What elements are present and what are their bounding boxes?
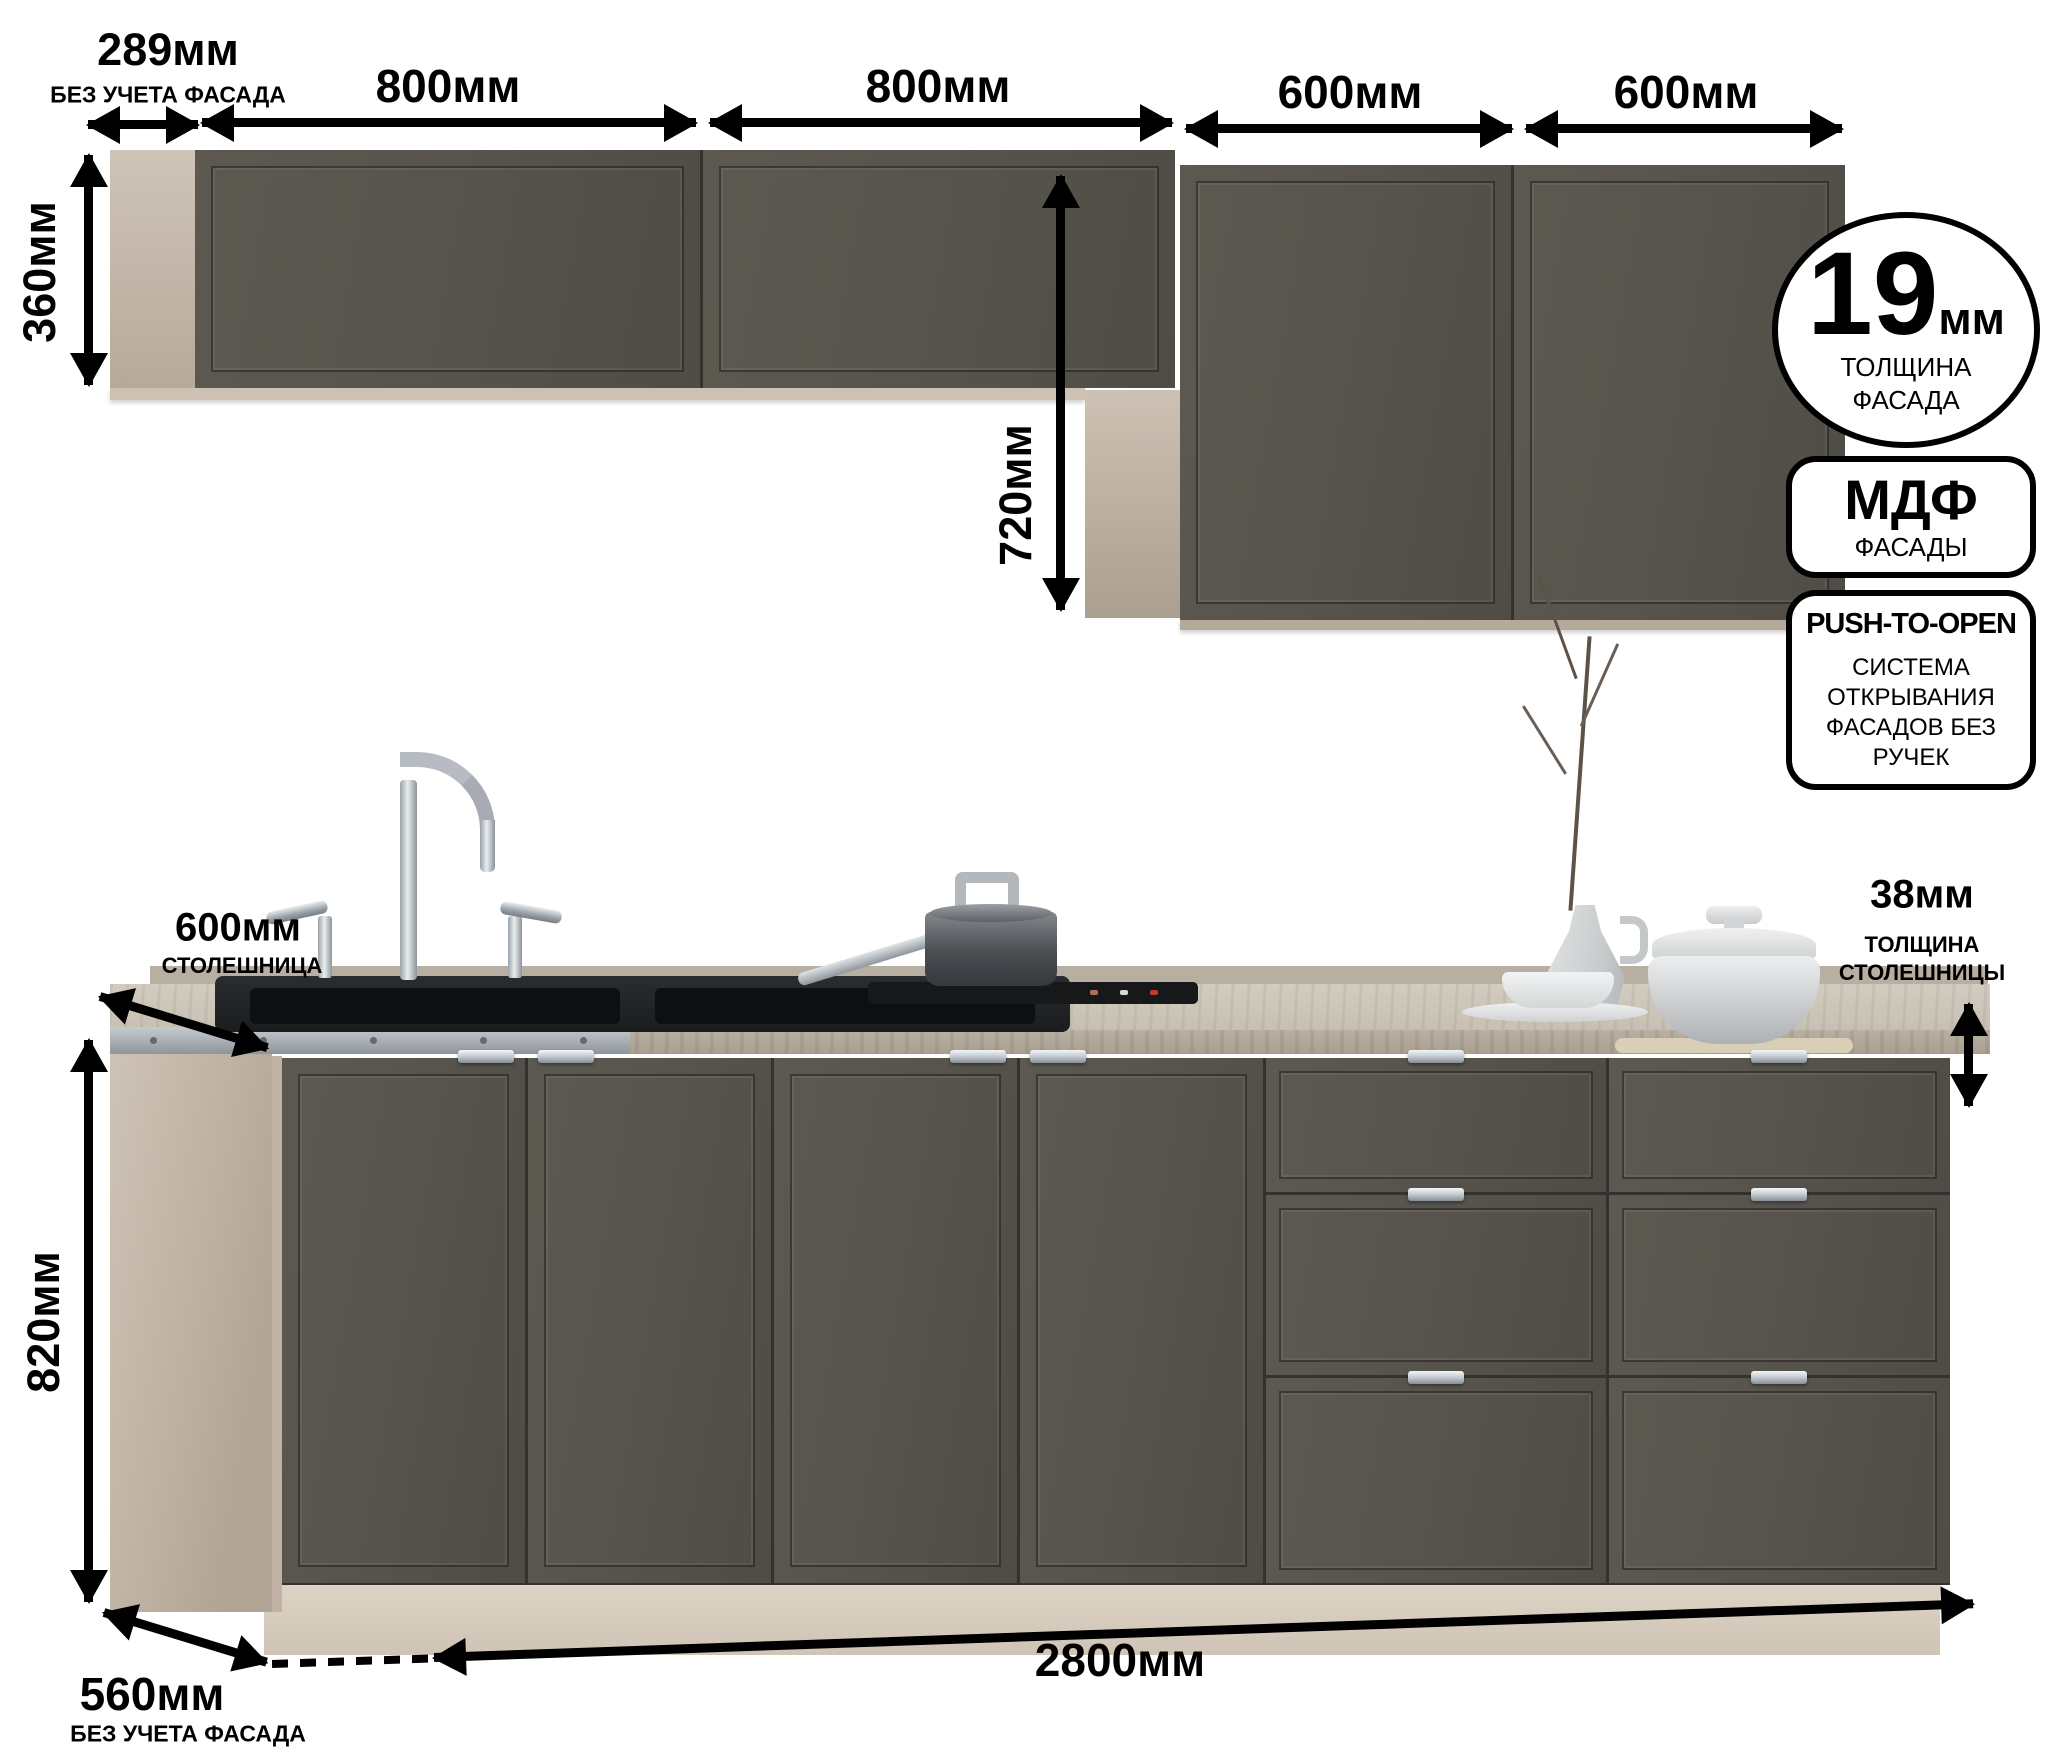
dim-wall-tall-height-arrow <box>1056 176 1065 610</box>
dim-wall-600-2-arrow <box>1526 124 1842 133</box>
screw <box>580 1037 587 1044</box>
dim-wall-800-1-value: 800мм <box>376 59 521 113</box>
faucet-spout-tip <box>480 820 495 872</box>
base-carcass-edge <box>272 1056 282 1612</box>
dim-wall-800-1-arrow <box>202 118 696 127</box>
drawer-col1-row2 <box>1266 1195 1606 1375</box>
dim-base-depth-note: БЕЗ УЧЕТА ФАСАДА <box>70 1721 306 1748</box>
drawer-handle <box>1751 1050 1807 1063</box>
badge-push-to-open: PUSH-TO-OPEN СИСТЕМА ОТКРЫВАНИЯ ФАСАДОВ … <box>1786 590 2036 790</box>
drawer-handle <box>1751 1371 1807 1384</box>
dim-base-depth-value: 560мм <box>80 1667 225 1721</box>
kitchen-dimension-diagram: 289мм БЕЗ УЧЕТА ФАСАДА 800мм 800мм 600мм… <box>0 0 2048 1757</box>
base-door-2 <box>528 1058 771 1583</box>
base-door-3 <box>774 1058 1017 1583</box>
drawer-col2-row3 <box>1609 1378 1950 1583</box>
badge-19-number: 19 <box>1807 228 1938 360</box>
dim-counter-depth-value: 600мм <box>175 906 301 951</box>
wall-door-600-1 <box>1180 165 1511 620</box>
drawer-panel-frame <box>1279 1071 1593 1179</box>
dim-wall-short-height-value: 360мм <box>14 201 66 343</box>
dim-wall-depth-value: 289мм <box>97 24 239 76</box>
door-panel-frame <box>1036 1074 1247 1567</box>
branch-stem <box>1568 636 1591 911</box>
serving-bowl <box>1502 972 1614 1008</box>
dim-counter-thickness-note1: ТОЛЩИНА <box>1865 932 1980 958</box>
drawer-panel-frame <box>1622 1208 1937 1362</box>
drawer-handle <box>1408 1188 1464 1201</box>
drawer-panel-frame <box>1622 1391 1937 1570</box>
dim-counter-thickness-note2: СТОЛЕШНИЦЫ <box>1839 960 2005 986</box>
screw <box>150 1037 157 1044</box>
badge-push-caption: СИСТЕМА ОТКРЫВАНИЯ ФАСАДОВ БЕЗ РУЧЕК <box>1823 653 1999 773</box>
badge-facade-thickness: 19мм ТОЛЩИНА ФАСАДА <box>1772 212 2040 448</box>
drawer-handle <box>1751 1188 1807 1201</box>
door-panel-frame <box>1196 181 1495 604</box>
door-handle <box>950 1050 1006 1063</box>
door-panel-frame <box>790 1074 1001 1567</box>
dim-wall-800-2-value: 800мм <box>866 59 1011 113</box>
dim-total-width-value: 2800мм <box>1035 1633 1205 1687</box>
door-panel-frame <box>1530 181 1829 604</box>
dim-wall-tall-height-value: 720мм <box>990 424 1042 566</box>
dim-wall-600-1-arrow <box>1186 124 1512 133</box>
badge-19-unit: мм <box>1938 293 2005 344</box>
dim-counter-depth-note: СТОЛЕШНИЦА <box>162 953 323 979</box>
door-handle <box>1030 1050 1086 1063</box>
dim-base-height-arrow <box>84 1040 93 1602</box>
door-handle <box>538 1050 594 1063</box>
cooktop-indicator <box>1150 990 1158 995</box>
drawer-panel-frame <box>1622 1071 1937 1179</box>
cooktop-indicator <box>1090 990 1098 995</box>
drawer-panel-frame <box>1279 1208 1593 1362</box>
badge-19-caption-2: ФАСАДА <box>1852 385 1959 416</box>
drawer-col1-row1 <box>1266 1058 1606 1192</box>
drawer-col2-row2 <box>1609 1195 1950 1375</box>
dim-wall-short-height-arrow <box>84 155 93 385</box>
door-panel-frame <box>211 166 684 372</box>
branch-twig <box>1522 705 1567 774</box>
dim-total-width-dashed-lead <box>272 1654 430 1668</box>
screw <box>480 1037 487 1044</box>
door-panel-frame <box>719 166 1159 372</box>
wall-bottom-rail <box>110 388 1085 400</box>
badge-19-caption-1: ТОЛЩИНА <box>1841 352 1972 383</box>
wall-door-800-1 <box>195 150 700 388</box>
screw <box>370 1037 377 1044</box>
dim-wall-600-1-value: 600мм <box>1278 65 1423 119</box>
dim-wall-800-2-arrow <box>710 118 1172 127</box>
vase-handle <box>1620 916 1648 964</box>
wall-door-800-2 <box>703 150 1175 388</box>
saucepan-lid <box>930 904 1052 922</box>
dim-base-depth-arrow <box>103 1608 268 1666</box>
badge-mdf-caption: ФАСАДЫ <box>1854 532 1967 563</box>
dim-base-height-value: 820мм <box>18 1251 70 1393</box>
sink-bowl-left <box>250 988 620 1024</box>
base-side-panel <box>110 1054 272 1612</box>
drawer-handle <box>1408 1371 1464 1384</box>
drawer-col1-row3 <box>1266 1378 1606 1583</box>
badge-push-title: PUSH-TO-OPEN <box>1806 608 2016 641</box>
cooktop-indicator <box>1120 990 1128 995</box>
dim-counter-thickness-value: 38мм <box>1870 873 1974 918</box>
drawer-col2-row1 <box>1609 1058 1950 1192</box>
drawer-panel-frame <box>1279 1391 1593 1570</box>
base-door-1 <box>282 1058 525 1583</box>
wall-side-panel <box>110 150 196 400</box>
door-panel-frame <box>298 1074 509 1567</box>
dim-wall-depth-arrow <box>88 120 198 129</box>
door-panel-frame <box>544 1074 755 1567</box>
dim-counter-thickness-arrow <box>1964 1004 1973 1106</box>
tall-cabinet-bottom-rail <box>1180 620 1845 630</box>
faucet-handle-right-post <box>508 916 522 978</box>
dim-wall-600-2-value: 600мм <box>1614 65 1759 119</box>
badge-material: МДФ ФАСАДЫ <box>1786 456 2036 578</box>
drawer-handle <box>1408 1050 1464 1063</box>
door-handle <box>458 1050 514 1063</box>
tall-cabinet-side-panel <box>1085 390 1180 618</box>
base-door-4 <box>1020 1058 1263 1583</box>
dim-wall-depth-note: БЕЗ УЧЕТА ФАСАДА <box>50 82 286 109</box>
saucepan-body <box>925 912 1057 986</box>
badge-mdf-title: МДФ <box>1844 472 1978 528</box>
